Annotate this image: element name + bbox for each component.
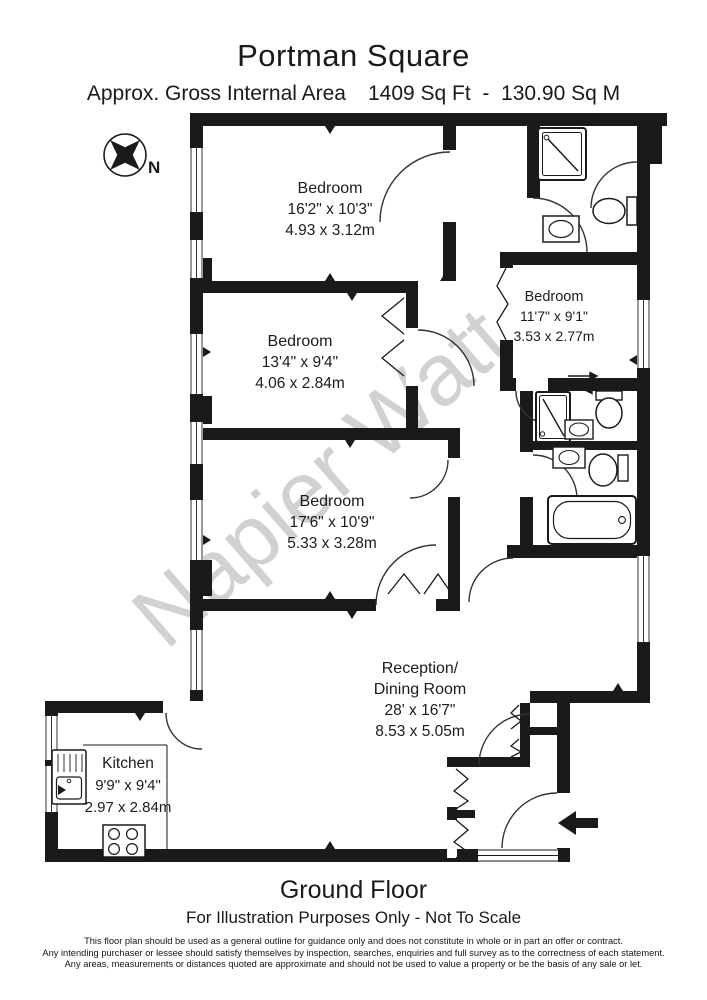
basin-icon <box>553 447 585 468</box>
toilet-icon <box>593 197 637 225</box>
header: Portman Square Approx. Gross Internal Ar… <box>0 0 707 100</box>
svg-text:Bedroom: Bedroom <box>300 493 365 510</box>
disclaimer-line: This floor plan should be used as a gene… <box>0 936 707 948</box>
svg-text:4.06 x 2.84m: 4.06 x 2.84m <box>255 375 345 392</box>
disclaimer-line: Any intending purchaser or lessee should… <box>0 948 707 960</box>
window <box>190 240 203 278</box>
area-label: Approx. Gross Internal Area <box>87 82 346 105</box>
disclaimer-line: Any areas, measurements or distances quo… <box>0 959 707 971</box>
sink-icon <box>52 750 86 804</box>
toilet-icon <box>596 391 622 428</box>
svg-text:Kitchen: Kitchen <box>102 755 154 772</box>
page-title: Portman Square <box>0 38 707 74</box>
basin-icon <box>543 216 579 242</box>
room-label-reception: Reception/ Dining Room 28' x 16'7" 8.53 … <box>374 660 466 740</box>
window <box>190 334 203 394</box>
room-label-bedroom-3: Bedroom 11'7" x 9'1" 3.53 x 2.77m <box>514 289 595 344</box>
svg-text:9'9" x 9'4": 9'9" x 9'4" <box>95 777 161 794</box>
area-subtitle: Approx. Gross Internal Area1409 Sq Ft - … <box>0 82 707 106</box>
scale-note: For Illustration Purposes Only - Not To … <box>0 908 707 928</box>
shower-icon <box>538 128 586 180</box>
window <box>190 630 203 690</box>
svg-text:13'4" x 9'4": 13'4" x 9'4" <box>262 354 338 371</box>
disclaimer: This floor plan should be used as a gene… <box>0 936 707 971</box>
svg-text:Bedroom: Bedroom <box>525 289 584 305</box>
room-label-kitchen: Kitchen 9'9" x 9'4" 2.97 x 2.84m <box>85 755 172 816</box>
hob-icon <box>103 825 145 857</box>
svg-text:Bedroom: Bedroom <box>298 180 363 197</box>
svg-text:Dining Room: Dining Room <box>374 681 466 698</box>
window <box>637 300 650 368</box>
svg-text:Bedroom: Bedroom <box>268 333 333 350</box>
compass-north-label: N <box>148 158 160 177</box>
svg-text:17'6" x 10'9": 17'6" x 10'9" <box>289 514 374 531</box>
svg-text:3.53 x 2.77m: 3.53 x 2.77m <box>514 328 595 344</box>
window <box>478 849 558 862</box>
svg-text:11'7" x 9'1": 11'7" x 9'1" <box>520 308 588 324</box>
svg-text:8.53 x 5.05m: 8.53 x 5.05m <box>375 723 465 740</box>
compass-icon: N <box>95 125 160 184</box>
window <box>637 556 650 642</box>
room-labels: Bedroom 16'2" x 10'3" 4.93 x 3.12m Bedro… <box>85 180 595 816</box>
svg-text:28' x 16'7": 28' x 16'7" <box>385 702 456 719</box>
svg-text:4.93 x 3.12m: 4.93 x 3.12m <box>285 222 375 239</box>
window <box>190 500 203 560</box>
window <box>190 148 203 212</box>
svg-text:Reception/: Reception/ <box>382 660 459 677</box>
svg-text:16'2" x 10'3": 16'2" x 10'3" <box>287 201 372 218</box>
svg-text:5.33 x 3.28m: 5.33 x 3.28m <box>287 535 377 552</box>
floor-label: Ground Floor <box>0 876 707 905</box>
footer: Ground Floor For Illustration Purposes O… <box>0 876 707 971</box>
svg-text:2.97 x 2.84m: 2.97 x 2.84m <box>85 799 172 816</box>
area-value: 1409 Sq Ft - 130.90 Sq M <box>368 82 620 105</box>
room-label-bedroom-1: Bedroom 16'2" x 10'3" 4.93 x 3.12m <box>285 180 375 239</box>
basin-icon <box>565 420 593 439</box>
bathtub-icon <box>548 496 636 544</box>
room-label-bedroom-4: Bedroom 17'6" x 10'9" 5.33 x 3.28m <box>287 493 377 552</box>
room-label-bedroom-2: Bedroom 13'4" x 9'4" 4.06 x 2.84m <box>255 333 345 392</box>
floor-plan: Napier Watt <box>0 100 707 870</box>
toilet-icon <box>589 454 628 486</box>
window <box>190 422 203 464</box>
